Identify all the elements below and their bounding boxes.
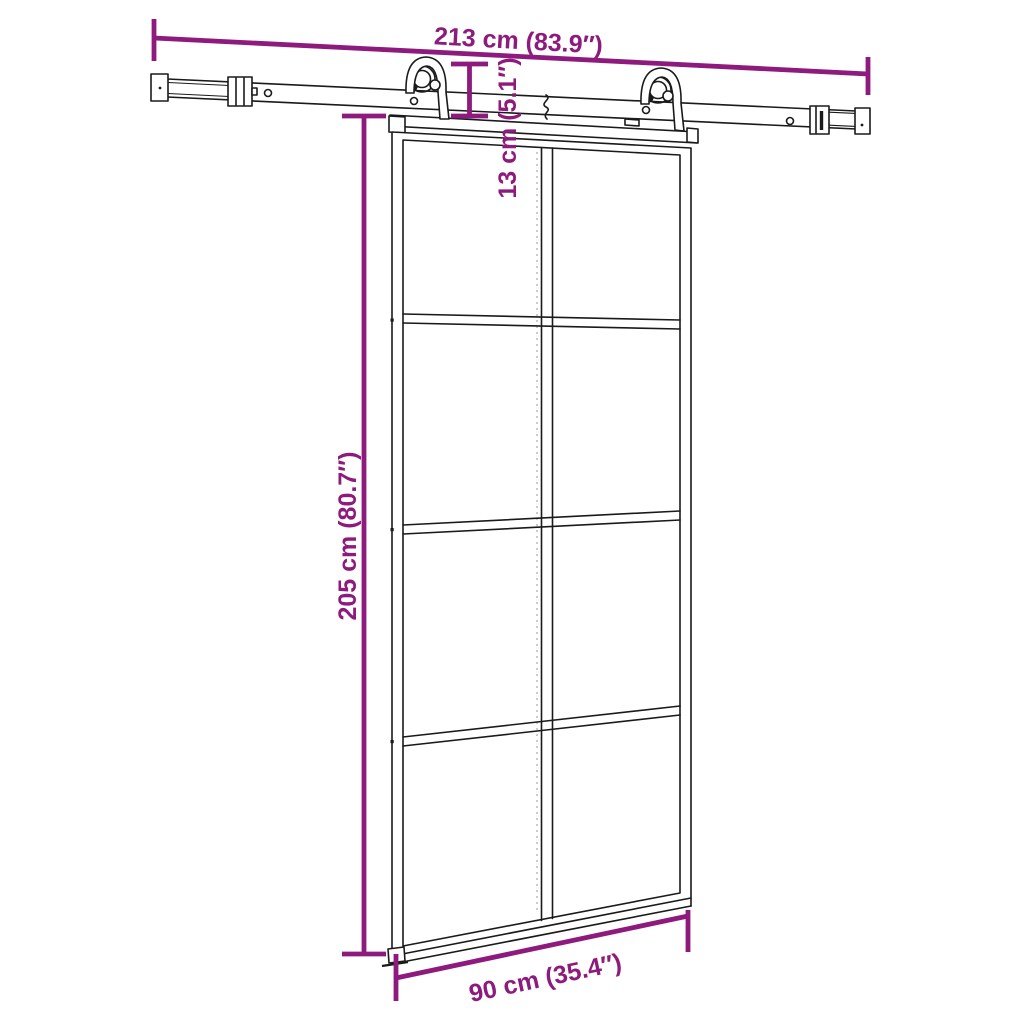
dimension-door-height: 205 cm (80.7″) [334,116,386,954]
barn-door-diagram: 213 cm (83.9″) 13 cm (5.1″) 205 cm (80.7… [0,0,1024,1024]
rail-right-end-cap [855,108,870,134]
rail-hole-1 [265,90,272,97]
door-height-label: 205 cm (80.7″) [334,451,362,620]
rail-left-end-screw-dot [159,87,162,90]
door-stop-bracket [625,119,639,126]
hardware-height-label: 13 cm (5.1″) [494,57,522,198]
strip-left-cap [389,116,405,133]
right-hanger-strap [641,68,684,131]
stile-joint-dot-1 [391,319,394,322]
rail-right-end-screw-dot [861,124,864,127]
left-hanger-bolt [430,80,440,90]
right-hanger-bolt [663,91,673,101]
door-panel [382,115,698,966]
rail-left-coupler [228,77,252,106]
rail-left-coupler-nub [252,88,257,95]
rail-right-tube-bottom [829,125,856,126]
rail-hole-4 [787,118,794,125]
rail-right-coupler [810,106,829,134]
right-roller-hanger [641,68,684,131]
rail-left-tube-bottom [168,94,229,97]
strip-top-edge [390,115,697,132]
rail-right-tube-top [829,112,856,113]
rail-hole-3 [643,107,650,114]
rail-left-tube-top [168,83,229,86]
diagram-canvas: 213 cm (83.9″) 13 cm (5.1″) 205 cm (80.7… [0,0,1024,1024]
rail-hole-2 [411,98,418,105]
stile-joint-dot-3 [391,740,394,743]
stile-joint-dot-2 [391,528,394,531]
strip-right-cap [687,128,698,143]
